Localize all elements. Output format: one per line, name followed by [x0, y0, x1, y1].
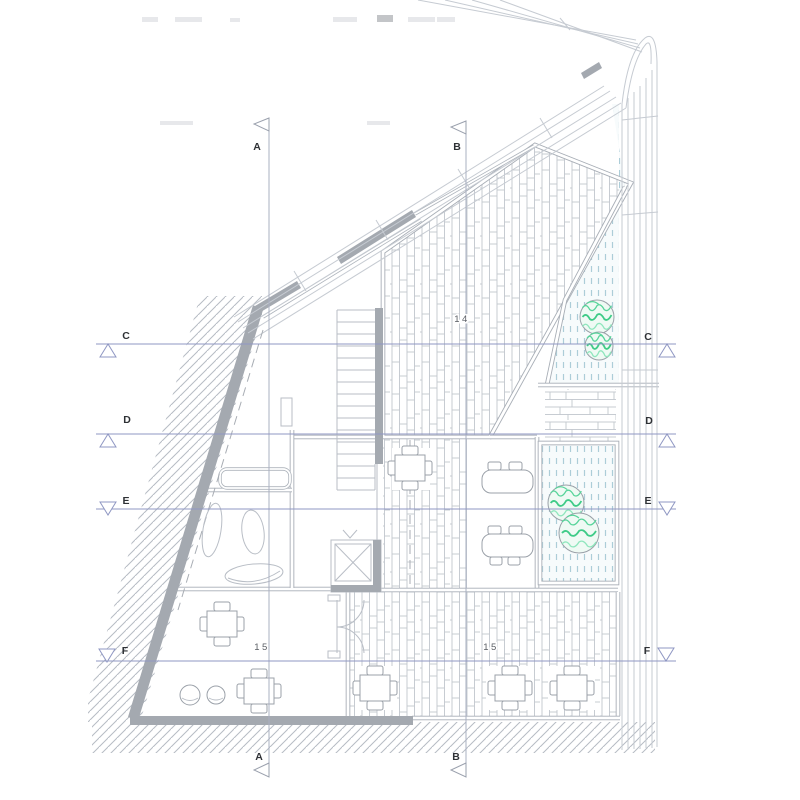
section-marker-d-right: D [645, 415, 653, 427]
room-label-14: 14 [454, 314, 470, 325]
elevator [331, 530, 381, 592]
tree [559, 513, 599, 553]
section-marker-f-left: F [122, 645, 129, 657]
section-marker-b-bottom: B [452, 751, 460, 763]
section-flag-icon [254, 118, 269, 131]
section-marker-f-right: F [644, 645, 651, 657]
room-label-15-left: 15 [254, 642, 270, 653]
table-4-chairs [200, 602, 244, 646]
desk-with-chairs [482, 526, 533, 565]
ghost-text-artifacts [142, 15, 455, 125]
section-marker-e-right: E [644, 495, 651, 507]
floor-plan-stage: A B A B C C D D E E F F 14 15 15 [0, 0, 800, 800]
section-marker-c-left: C [122, 330, 130, 342]
section-flag-icon [254, 763, 269, 777]
tree [580, 300, 614, 334]
stool [207, 686, 225, 704]
room-label-15-right: 15 [483, 642, 499, 653]
counter [220, 469, 290, 488]
floor-fills [348, 104, 631, 716]
tree [585, 332, 613, 360]
stair-wall [375, 308, 383, 464]
upper-terrace-tiles [545, 389, 616, 441]
section-marker-a-top: A [253, 141, 261, 153]
stool [180, 685, 200, 705]
counter [220, 469, 290, 488]
table-4-chairs [237, 669, 281, 713]
elevator-call-icon [343, 530, 357, 538]
desk-with-chairs [482, 462, 533, 493]
floor-plan-canvas: A B A B C C D D E E F F 14 15 15 [0, 0, 800, 800]
bottom-perimeter-wall [130, 716, 413, 725]
section-flag-icon [451, 763, 466, 777]
section-marker-e-left: E [122, 495, 129, 507]
section-marker-b-top: B [453, 141, 461, 153]
planter-leaf [239, 509, 266, 555]
section-marker-a-bottom: A [255, 751, 263, 763]
section-flag-icon [451, 121, 466, 134]
section-marker-c-right: C [644, 331, 652, 343]
section-marker-d-left: D [123, 414, 131, 426]
